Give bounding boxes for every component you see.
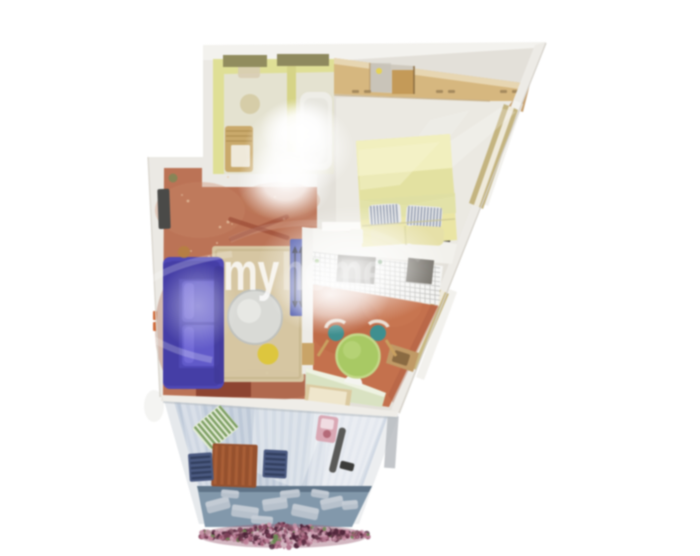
- svg-text:home: home: [281, 242, 384, 301]
- svg-text:my: my: [223, 242, 279, 301]
